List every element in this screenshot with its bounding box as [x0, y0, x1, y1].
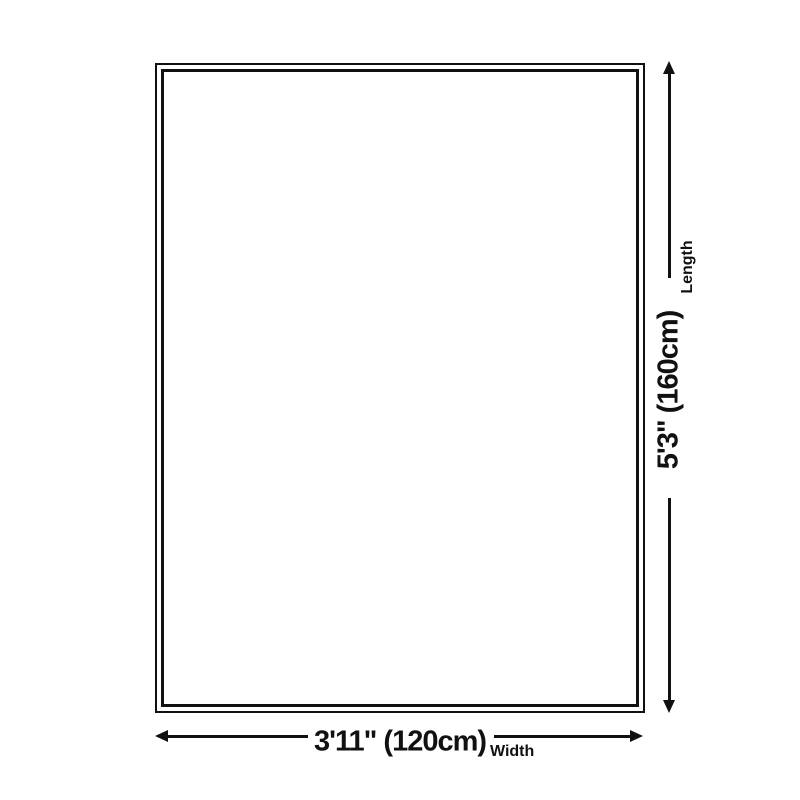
- rug-outline-inner: [161, 69, 639, 707]
- length-dimension-value: 5'3" (160cm): [655, 311, 684, 470]
- width-dimension-line-right: [494, 735, 632, 738]
- length-axis-label: Length: [680, 240, 696, 293]
- length-dimension-line-lower: [668, 498, 671, 701]
- width-dimension-line-left: [166, 735, 308, 738]
- rug-outline-outer: [155, 63, 645, 713]
- rug-size-diagram: Length 5'3" (160cm) 3'11" (120cm) Width: [0, 0, 800, 800]
- arrow-right-icon: [630, 730, 643, 742]
- arrow-down-icon: [663, 700, 675, 713]
- length-dimension-line-upper: [668, 72, 671, 278]
- width-dimension-value: 3'11" (120cm): [314, 728, 486, 757]
- width-axis-label: Width: [490, 744, 534, 760]
